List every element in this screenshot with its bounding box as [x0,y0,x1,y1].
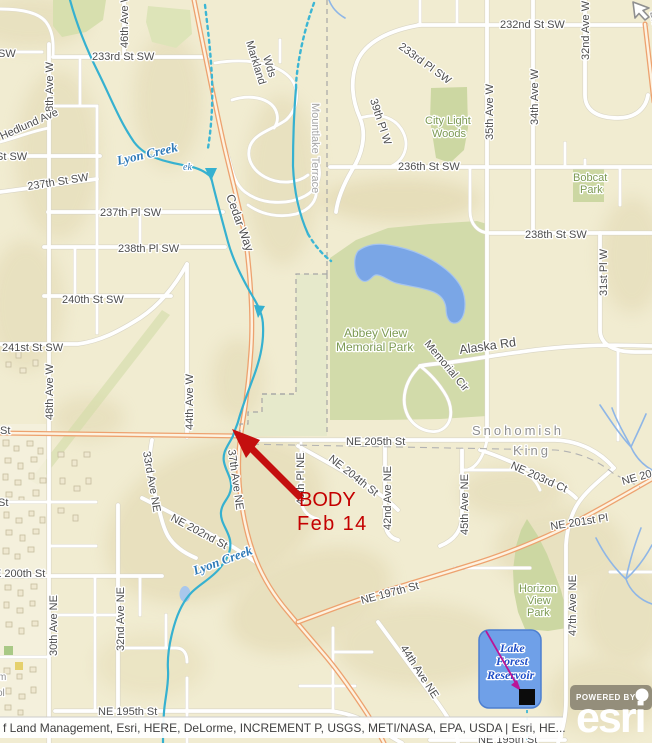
svg-text:f Land Management, Esri, HERE,: f Land Management, Esri, HERE, DeLorme, … [3,721,566,735]
svg-text:ol: ol [0,688,5,699]
svg-text:BODY: BODY [299,489,356,511]
svg-text:45th Ave NE: 45th Ave NE [459,474,471,535]
svg-text:St SW: St SW [0,151,28,163]
svg-text:City Light: City Light [425,115,471,127]
svg-text:NE 200th St: NE 200th St [0,568,45,580]
svg-text:St: St [0,497,8,509]
svg-text:Snohomish: Snohomish [472,423,564,438]
svg-text:Abbey View: Abbey View [344,326,407,340]
svg-text:m: m [0,672,6,683]
svg-text:47th Ave NE: 47th Ave NE [567,575,579,636]
svg-text:42nd Ave NE: 42nd Ave NE [382,466,394,530]
svg-text:NE 195th St: NE 195th St [98,706,157,718]
svg-text:Horizon: Horizon [519,583,557,595]
svg-text:238th Pl SW: 238th Pl SW [118,243,180,255]
svg-text:Bobcat: Bobcat [573,172,607,184]
svg-text:SW: SW [0,48,16,60]
svg-text:Woods: Woods [432,128,467,140]
svg-text:237th Pl SW: 237th Pl SW [100,207,162,219]
svg-text:King: King [513,443,551,458]
svg-text:32nd Ave W: 32nd Ave W [580,0,592,60]
svg-text:44th Ave W: 44th Ave W [184,373,196,430]
svg-text:St: St [0,425,10,437]
svg-text:240th St SW: 240th St SW [62,294,124,306]
svg-text:Feb 14: Feb 14 [297,513,368,535]
svg-text:NE 205th St: NE 205th St [346,436,405,448]
svg-text:34th Ave W: 34th Ave W [529,68,541,125]
svg-text:233rd St SW: 233rd St SW [92,51,155,63]
svg-text:View: View [527,595,551,607]
svg-text:Memorial Park: Memorial Park [336,340,414,354]
svg-text:30th Ave NE: 30th Ave NE [48,595,60,656]
svg-text:esri: esri [576,694,645,742]
svg-text:Park: Park [527,607,550,619]
svg-text:46th Ave W: 46th Ave W [119,0,131,48]
svg-text:241st St SW: 241st St SW [2,342,64,354]
svg-text:35th Ave W: 35th Ave W [484,83,496,140]
svg-text:238th St SW: 238th St SW [525,229,587,241]
svg-text:Park: Park [580,184,603,196]
svg-text:31st Pl W: 31st Pl W [598,248,610,296]
svg-text:Lake: Lake [499,641,525,655]
svg-text:32nd Ave NE: 32nd Ave NE [115,587,127,651]
svg-text:Mountlake Terrace: Mountlake Terrace [309,103,321,193]
svg-text:48th Ave W: 48th Ave W [44,363,56,420]
svg-text:232nd St SW: 232nd St SW [500,19,565,31]
svg-text:236th St SW: 236th St SW [398,161,460,173]
svg-text:ek: ek [183,162,192,173]
